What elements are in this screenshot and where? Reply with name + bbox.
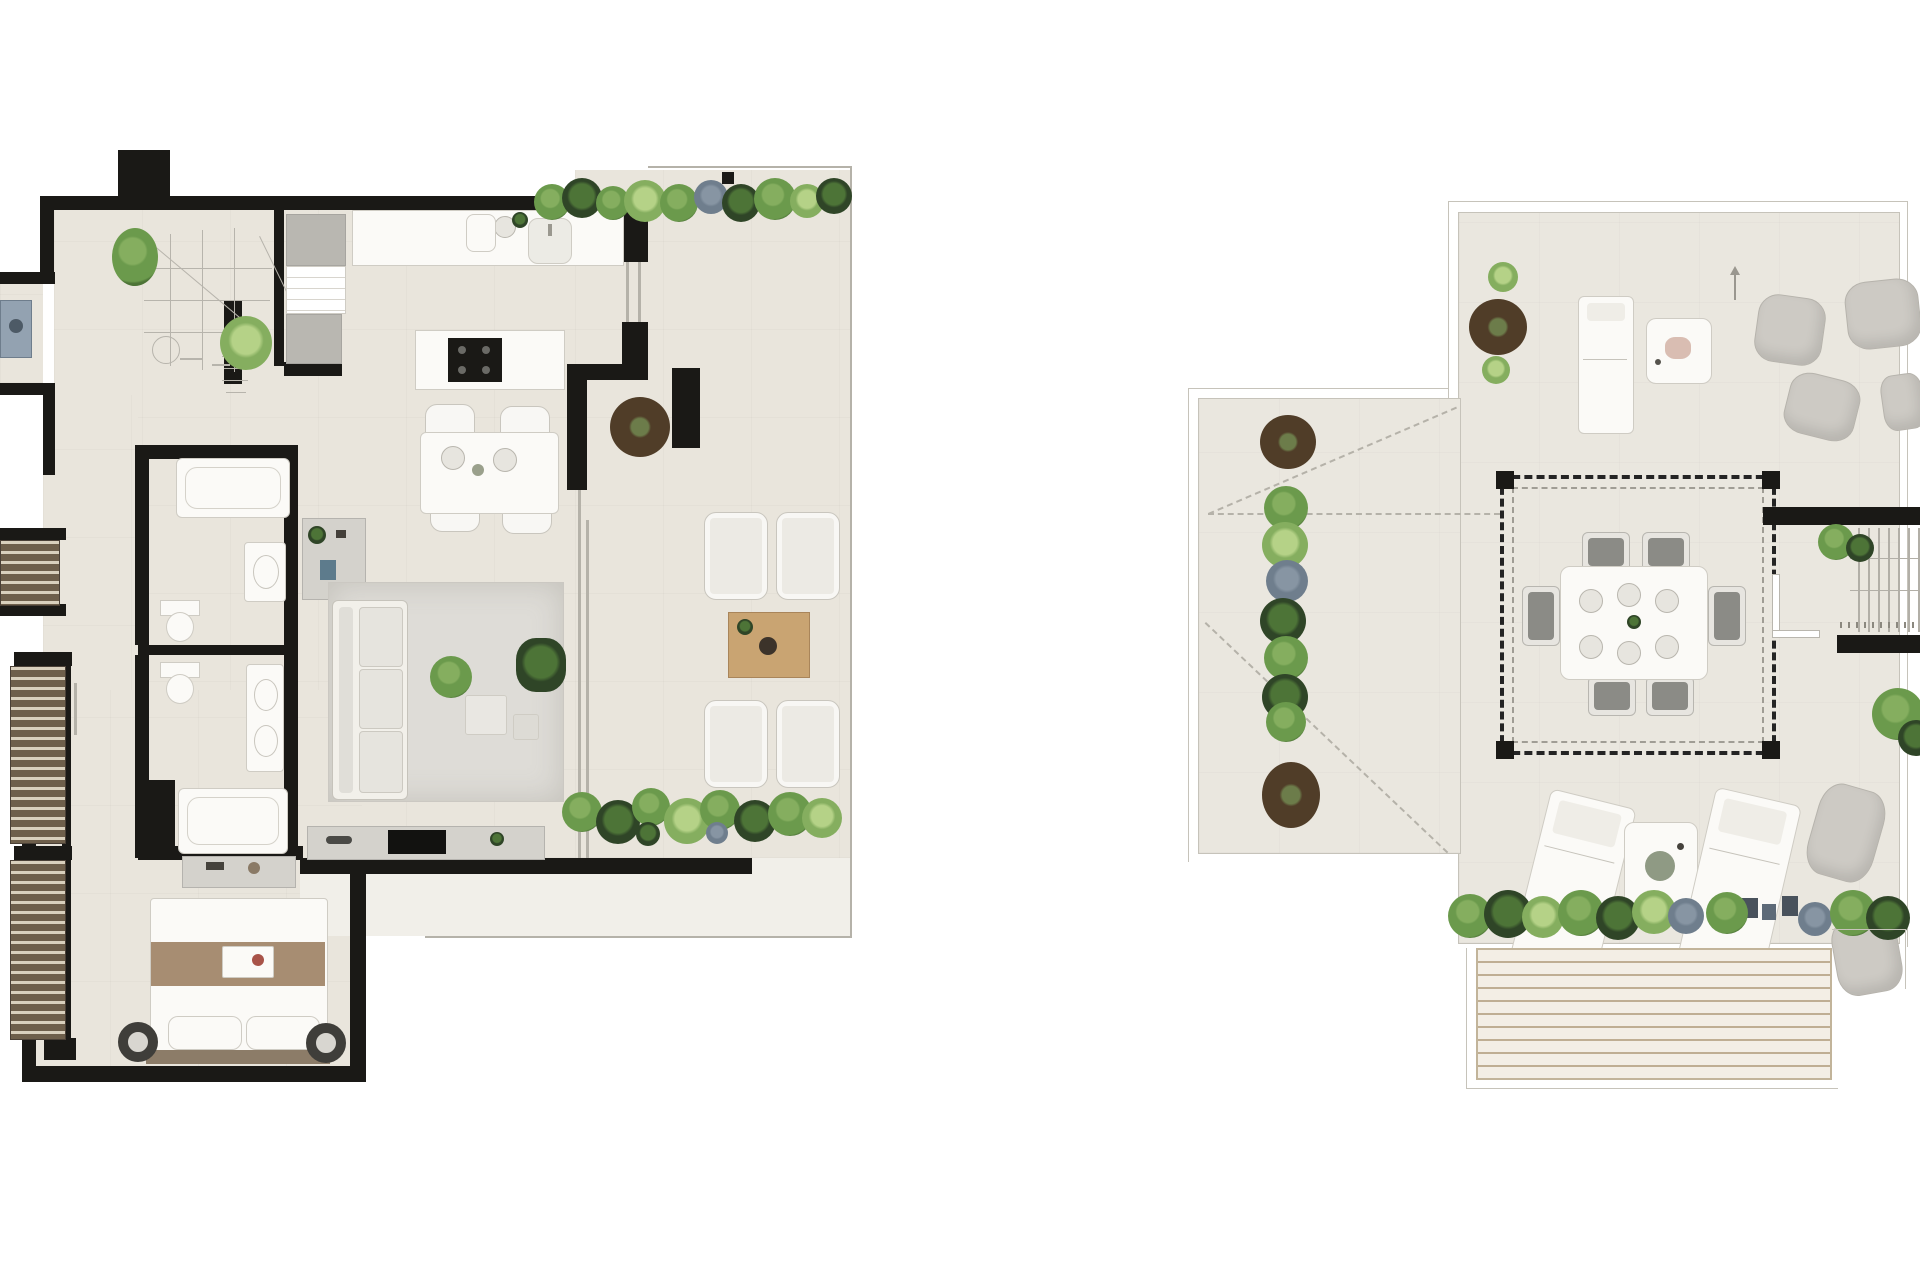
plant xyxy=(660,184,698,222)
wall-jog xyxy=(567,364,587,490)
wood-slat-deck xyxy=(1476,948,1832,1080)
wall-closet-cap xyxy=(14,846,72,860)
decor-item xyxy=(326,836,352,844)
bean-bag-pouf xyxy=(1843,276,1920,351)
pillow xyxy=(168,1016,242,1050)
terrace-armchair xyxy=(776,512,840,600)
pergola-post xyxy=(1496,471,1514,489)
closet xyxy=(286,214,346,266)
parapet-line xyxy=(1466,1088,1838,1089)
dining-table xyxy=(420,432,559,514)
herb-pot xyxy=(512,212,528,228)
plate xyxy=(493,448,517,472)
round-planter xyxy=(610,397,670,457)
wall-closet-cap xyxy=(0,528,66,540)
faucet xyxy=(548,224,552,236)
wall-bath-left xyxy=(135,445,149,645)
dark-plant-table xyxy=(516,638,566,692)
wall-living-bottom xyxy=(300,858,752,874)
stair-wall xyxy=(1763,507,1920,525)
wall-left xyxy=(40,196,54,276)
parapet-line xyxy=(1832,929,1906,930)
toilet xyxy=(160,662,198,702)
terrace-armchair xyxy=(704,700,768,788)
kitchen-appliance xyxy=(466,214,496,252)
hall-door-leaf xyxy=(74,683,77,735)
rose-decor xyxy=(252,954,264,966)
floorplan-sheet xyxy=(0,0,1920,1280)
nightstand-lamp xyxy=(118,1022,158,1062)
parapet-line xyxy=(1188,388,1189,862)
pergola-post xyxy=(1762,741,1780,759)
terrace-rail-right xyxy=(850,166,852,938)
stair-handrail xyxy=(1772,574,1780,638)
sink-vanity xyxy=(244,542,286,602)
wall xyxy=(43,383,55,475)
wall-bedroom-bottom xyxy=(22,1066,366,1082)
sun-lounger xyxy=(1578,296,1634,434)
planter-pot xyxy=(1762,904,1776,920)
terrace-lower-slab xyxy=(300,874,852,936)
decor-plant xyxy=(308,526,326,544)
hedge-plant xyxy=(1798,902,1832,936)
grass-tuft xyxy=(1488,262,1518,292)
planter-pot xyxy=(1782,896,1798,916)
tv xyxy=(388,830,446,854)
decor-item xyxy=(248,862,260,874)
parapet-line xyxy=(1448,201,1449,398)
wood-coffee-table xyxy=(728,612,810,678)
parapet-line xyxy=(1188,388,1449,389)
sofa xyxy=(332,600,408,800)
bathtub xyxy=(176,458,290,518)
bathtub xyxy=(178,788,288,854)
wall-pillar xyxy=(672,368,700,448)
bean-bag-pouf xyxy=(1752,292,1829,369)
kitchen-door-track xyxy=(626,262,629,322)
decor-item xyxy=(336,530,346,538)
stair-number-marks xyxy=(1840,622,1918,628)
outdoor-dining-table xyxy=(1560,566,1708,680)
stair-handrail xyxy=(1772,630,1820,638)
hedge-plant xyxy=(1266,702,1306,742)
rail-post xyxy=(722,172,734,184)
plant xyxy=(220,316,272,370)
pergola-post xyxy=(1496,741,1514,759)
hedge-plant xyxy=(1866,896,1910,940)
grass-tuft xyxy=(1482,356,1510,384)
outdoor-chair xyxy=(1588,676,1636,716)
parapet-line xyxy=(1466,948,1467,1088)
terrace-armchair xyxy=(704,512,768,600)
hedge-plant xyxy=(1668,898,1704,934)
wall-closet-cap xyxy=(44,1038,76,1060)
wall-bath-divider xyxy=(138,645,295,655)
plant xyxy=(802,798,842,838)
toilet xyxy=(160,600,198,640)
roof-terrace-plan xyxy=(900,0,1920,1280)
table-centerpiece xyxy=(472,464,484,476)
closet xyxy=(286,314,342,364)
terrace-rail-bottom xyxy=(425,936,852,938)
plate xyxy=(441,446,465,470)
nightstand-lamp xyxy=(306,1023,346,1063)
sink-vanity xyxy=(246,664,284,772)
kitchen-door-track xyxy=(638,262,641,322)
outdoor-chair xyxy=(1646,676,1694,716)
decor-item xyxy=(320,560,336,580)
terrace-armchair xyxy=(776,700,840,788)
washing-machine xyxy=(0,300,32,358)
louvered-wardrobe xyxy=(10,666,66,844)
plant xyxy=(112,228,158,286)
decor-item xyxy=(206,862,224,870)
round-planter xyxy=(1469,299,1527,355)
coffee-cube xyxy=(465,695,507,735)
roof-floor-left xyxy=(1198,398,1461,854)
louvered-wardrobe xyxy=(0,540,60,606)
wall xyxy=(0,272,55,284)
plant xyxy=(816,178,852,214)
round-planter xyxy=(1262,762,1320,828)
outdoor-chair xyxy=(1522,586,1560,646)
side-table xyxy=(1646,318,1712,384)
cooktop xyxy=(448,338,502,382)
decor-plant xyxy=(490,832,504,846)
terrace-rail-top xyxy=(648,166,852,168)
bed-tray xyxy=(222,946,274,978)
hedge-plant xyxy=(1266,560,1308,602)
coffee-cube xyxy=(513,714,539,740)
closet-shelves xyxy=(286,266,346,314)
round-planter xyxy=(1260,415,1316,469)
apartment-plan xyxy=(0,0,900,1280)
stair-line xyxy=(1850,590,1920,591)
terrace-lower-slab xyxy=(752,858,852,874)
parapet-line xyxy=(1448,201,1908,202)
parapet-line xyxy=(1905,929,1906,989)
stair-wall xyxy=(1837,635,1920,653)
wall xyxy=(284,362,342,376)
plant xyxy=(706,822,728,844)
wall-bedroom-right xyxy=(350,858,366,1082)
plant xyxy=(636,822,660,846)
dresser xyxy=(182,856,296,888)
plant xyxy=(1898,720,1920,756)
plant xyxy=(1846,534,1874,562)
north-arrow xyxy=(1728,266,1742,300)
wall xyxy=(135,655,149,780)
louvered-wardrobe xyxy=(10,860,66,1040)
pergola-post xyxy=(1762,471,1780,489)
headboard xyxy=(146,1050,330,1064)
outdoor-chair xyxy=(1708,586,1746,646)
roof-projection-line xyxy=(1208,513,1500,515)
potted-plant xyxy=(430,656,472,698)
hedge-plant xyxy=(1706,892,1748,934)
wall-bath-top xyxy=(135,445,298,459)
